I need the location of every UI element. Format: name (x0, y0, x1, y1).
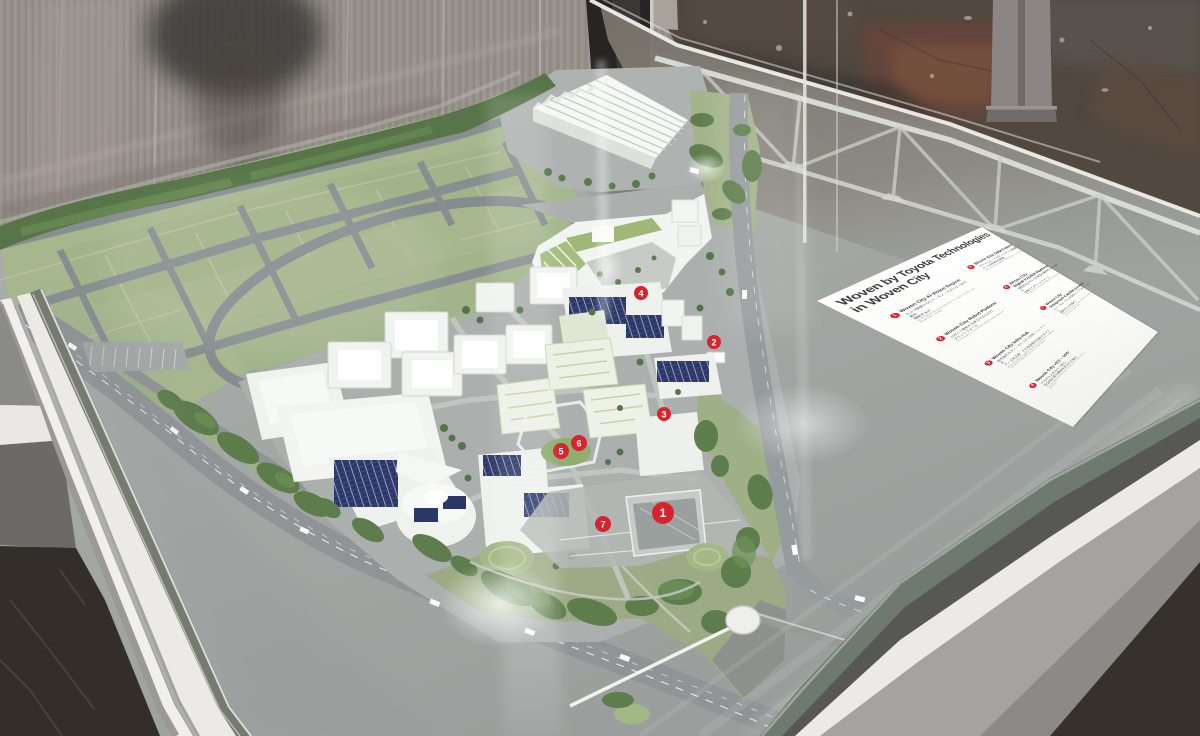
svg-text:3: 3 (661, 410, 666, 420)
svg-text:6: 6 (576, 439, 581, 449)
svg-text:1: 1 (660, 506, 667, 520)
svg-text:4: 4 (638, 289, 643, 299)
svg-text:7: 7 (600, 520, 605, 530)
svg-text:2: 2 (711, 338, 716, 348)
svg-text:5: 5 (558, 447, 563, 457)
